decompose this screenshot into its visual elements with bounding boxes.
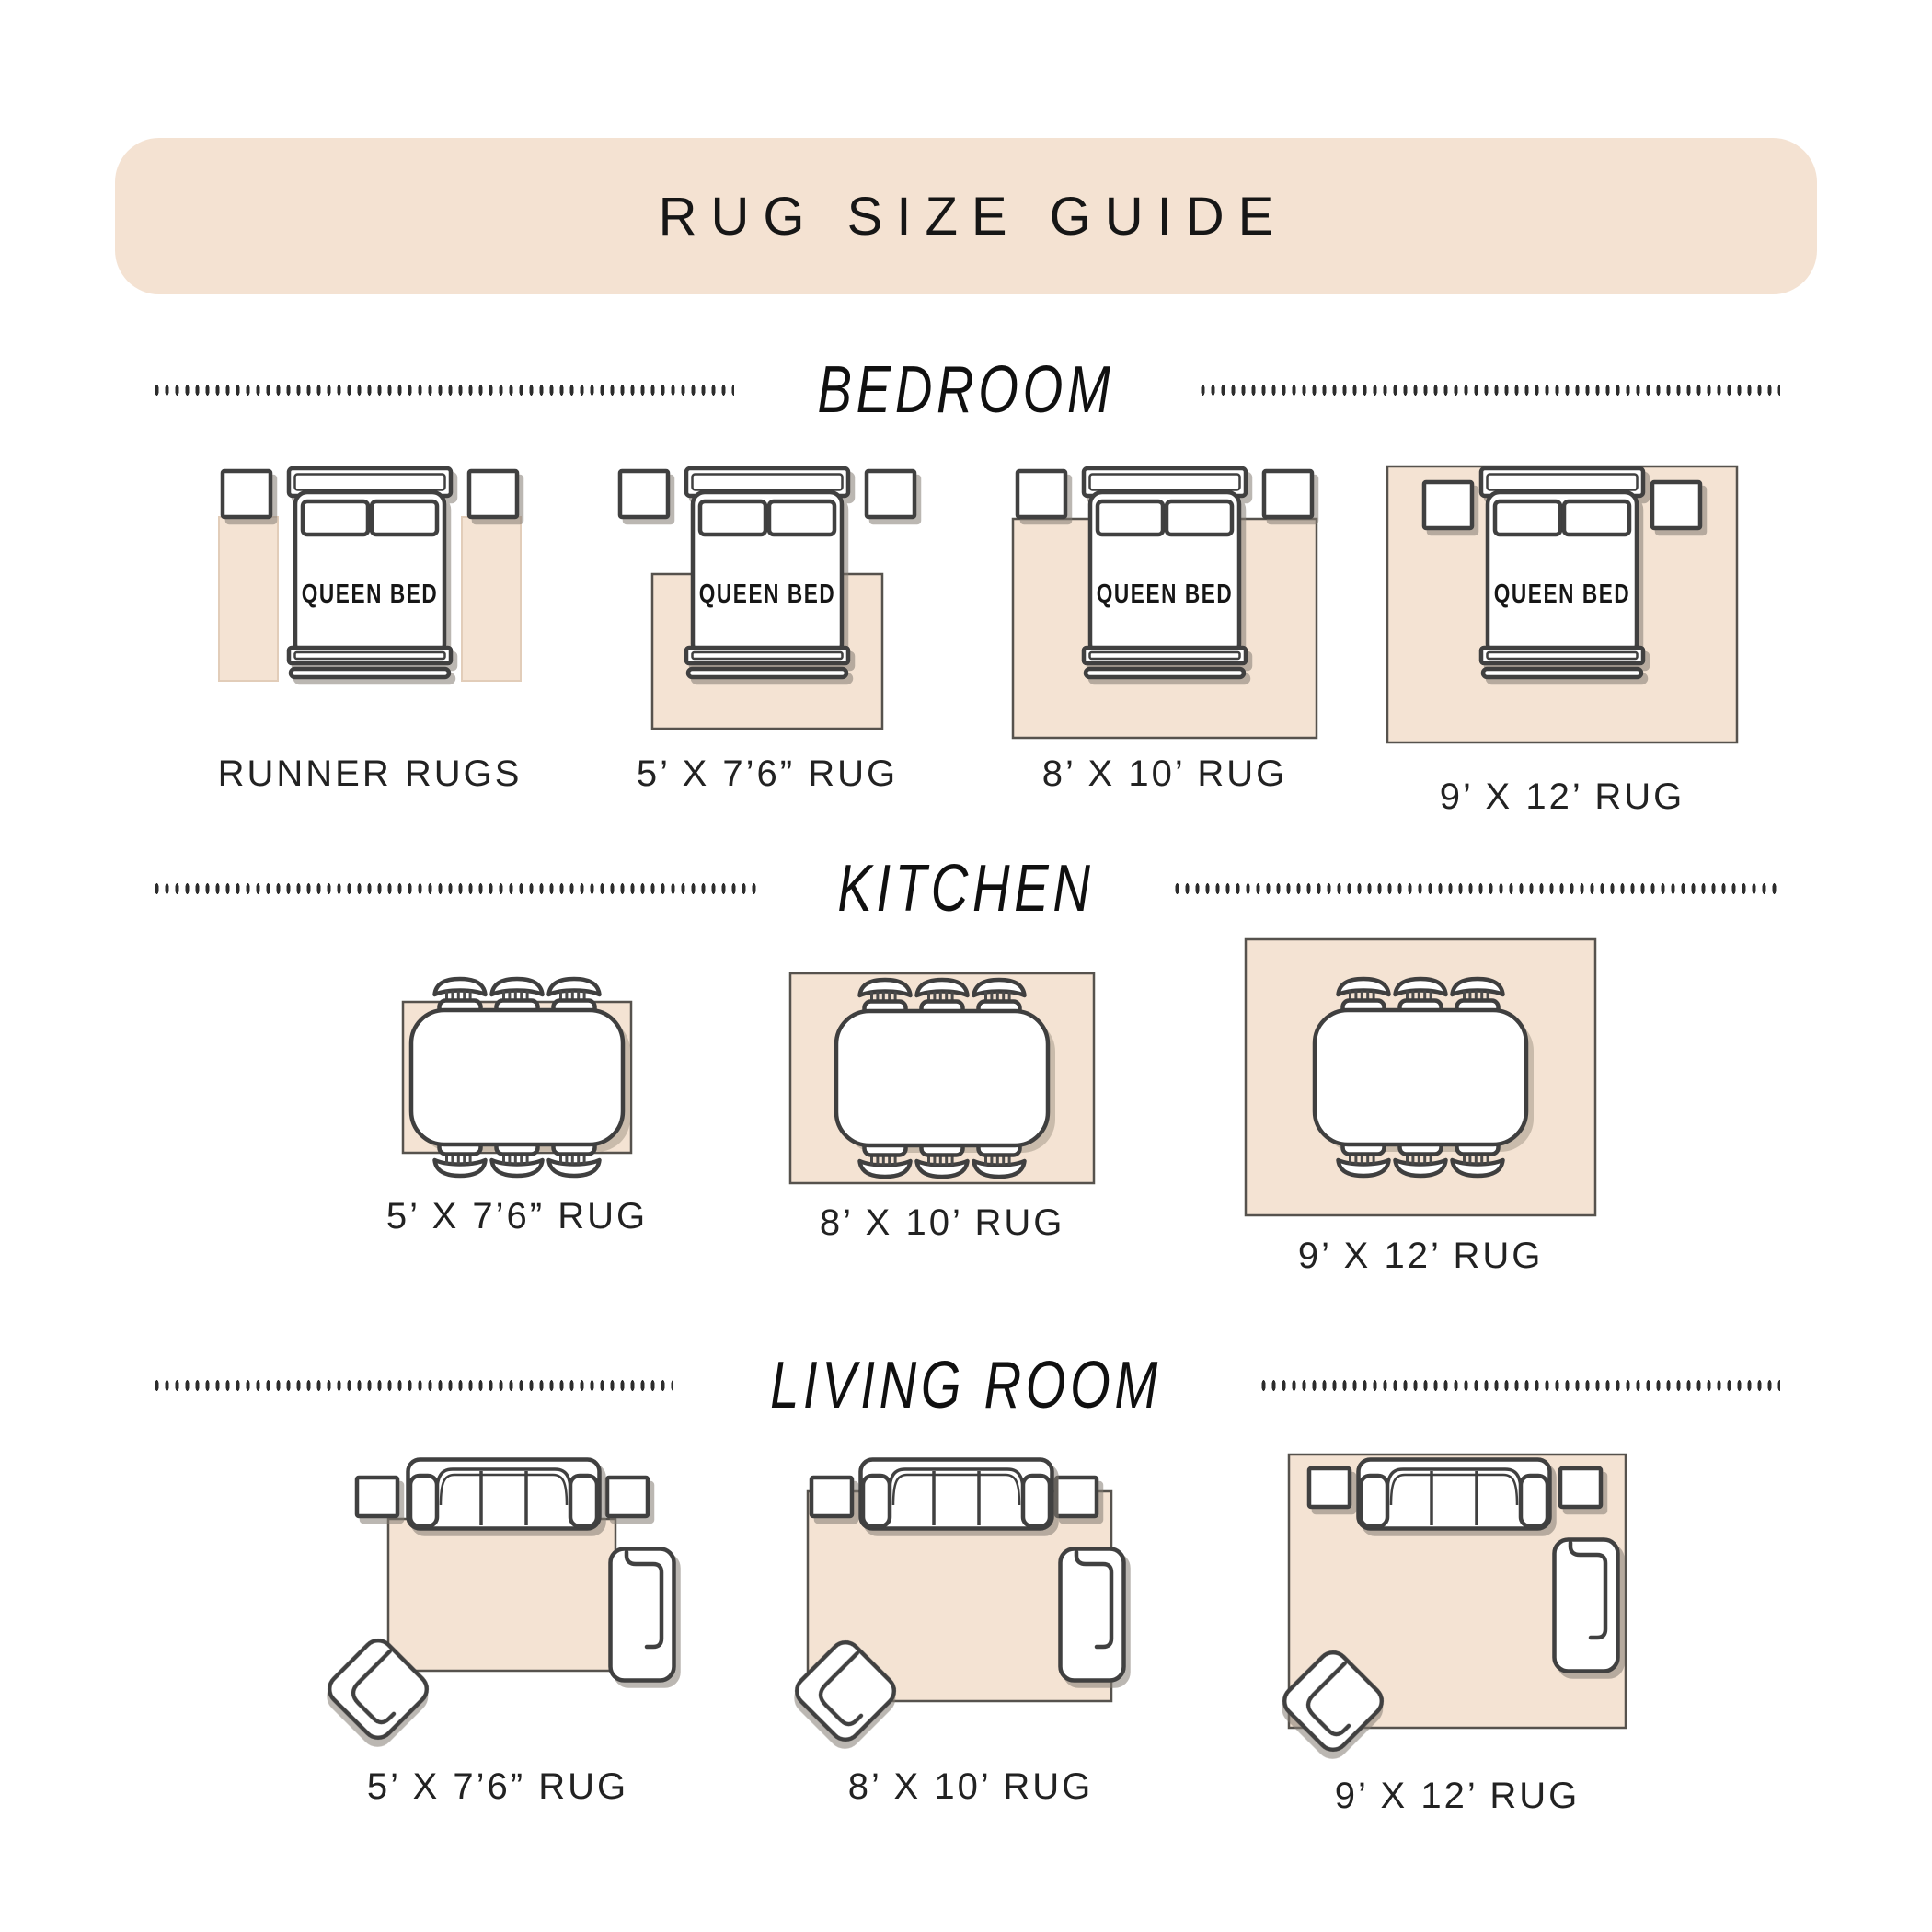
rug-size-caption: 5’ X 7’6” RUG	[386, 1194, 648, 1238]
kitchen-5x76-figure: 5’ X 7’6” RUG	[386, 974, 648, 1238]
kitchen-8x10-figure: 8’ X 10’ RUG	[781, 968, 1103, 1246]
dotted-line	[152, 1377, 673, 1394]
sofa-icon	[861, 1460, 1052, 1529]
runner-rug-left	[219, 517, 278, 681]
nightstand-icon	[620, 471, 668, 517]
queen-bed-icon	[1481, 468, 1643, 677]
kitchen-5x76-diagram	[394, 974, 640, 1179]
bedroom-runner-rugs-figure: RUNNER RUGS	[177, 462, 563, 796]
queen-bed-icon	[686, 468, 848, 677]
rug-size-caption: 8’ X 10’ RUG	[848, 1765, 1093, 1809]
section-title-bedroom: BEDROOM	[818, 352, 1115, 428]
nightstand-icon	[1424, 482, 1472, 528]
rug-size-caption: 8’ X 10’ RUG	[820, 1202, 1064, 1246]
kitchen-9x12-diagram	[1236, 935, 1604, 1219]
section-title-kitchen: KITCHEN	[837, 851, 1094, 926]
dotted-line	[152, 880, 760, 897]
bedroom-8x10-diagram	[972, 462, 1358, 752]
rug-size-guide-infographic: QUEEN BED	[0, 0, 1932, 1932]
accent-chair-icon	[1061, 1549, 1124, 1681]
section-divider-living-room: LIVING ROOM	[152, 1347, 1780, 1424]
queen-bed-icon	[1084, 468, 1246, 677]
rug-size-caption: 9’ X 12’ RUG	[1298, 1234, 1543, 1278]
bedroom-8x10-figure: 8’ X 10’ RUG	[972, 462, 1358, 796]
accent-chair-icon	[1555, 1540, 1618, 1672]
kitchen-9x12-figure: 9’ X 12’ RUG	[1236, 935, 1604, 1278]
end-table-icon	[1560, 1468, 1601, 1507]
bedroom-9x12-diagram	[1369, 462, 1755, 775]
bedroom-5x76-diagram	[574, 462, 960, 752]
living-5x76-figure: 5’ X 7’6” RUG	[314, 1450, 682, 1809]
dotted-line	[1172, 880, 1780, 897]
section-divider-bedroom: BEDROOM	[152, 351, 1780, 429]
nightstand-icon	[1264, 471, 1312, 517]
rug-size-caption: 5’ X 7’6” RUG	[367, 1765, 628, 1809]
living-8x10-figure: 8’ X 10’ RUG	[787, 1450, 1155, 1809]
sofa-icon	[408, 1460, 600, 1529]
section-divider-kitchen: KITCHEN	[152, 850, 1780, 927]
bedroom-9x12-figure: 9’ X 12’ RUG	[1369, 462, 1755, 819]
nightstand-icon	[867, 471, 914, 517]
rug	[388, 1519, 615, 1671]
living-room-diagrams-row: 5’ X 7’6” RUG 8’ X 10’ RUG 9’	[0, 1450, 1932, 1818]
rug-size-caption: 9’ X 12’ RUG	[1335, 1774, 1580, 1818]
sofa-icon	[1359, 1460, 1550, 1529]
rug-size-caption: 5’ X 7’6” RUG	[637, 752, 898, 796]
living-9x12-diagram	[1259, 1450, 1655, 1763]
runner-rug-right	[462, 517, 521, 681]
section-title-living-room: LIVING ROOM	[770, 1348, 1162, 1423]
queen-bed-icon	[289, 468, 451, 677]
living-5x76-diagram	[314, 1450, 682, 1754]
rug-size-caption: 9’ X 12’ RUG	[1440, 775, 1685, 819]
dotted-line	[152, 382, 734, 398]
bedroom-runner-diagram	[177, 462, 563, 752]
living-8x10-diagram	[787, 1450, 1155, 1754]
bedroom-diagrams-row: RUNNER RUGS 5’ X 7’6” RUG 8’ X 10’ RUG	[0, 462, 1932, 819]
page-title: RUG SIZE GUIDE	[645, 186, 1288, 247]
dotted-line	[1259, 1377, 1780, 1394]
accent-chair-icon	[611, 1549, 674, 1681]
nightstand-icon	[223, 471, 270, 517]
title-banner: RUG SIZE GUIDE	[115, 138, 1817, 294]
bedroom-5x76-figure: 5’ X 7’6” RUG	[574, 462, 960, 796]
end-table-icon	[811, 1478, 852, 1516]
rug-size-caption: 8’ X 10’ RUG	[1042, 752, 1287, 796]
kitchen-diagrams-row: 5’ X 7’6” RUG 8’ X 10’ RUG 9’ X 12’ RUG	[0, 935, 1932, 1278]
nightstand-icon	[1018, 471, 1065, 517]
nightstand-icon	[469, 471, 517, 517]
kitchen-8x10-diagram	[781, 968, 1103, 1187]
nightstand-icon	[1652, 482, 1700, 528]
dotted-line	[1198, 382, 1780, 398]
living-9x12-figure: 9’ X 12’ RUG	[1259, 1450, 1655, 1818]
end-table-icon	[1309, 1468, 1350, 1507]
end-table-icon	[607, 1478, 648, 1516]
rug-size-caption: RUNNER RUGS	[218, 752, 523, 796]
end-table-icon	[357, 1478, 397, 1516]
end-table-icon	[1056, 1478, 1097, 1516]
